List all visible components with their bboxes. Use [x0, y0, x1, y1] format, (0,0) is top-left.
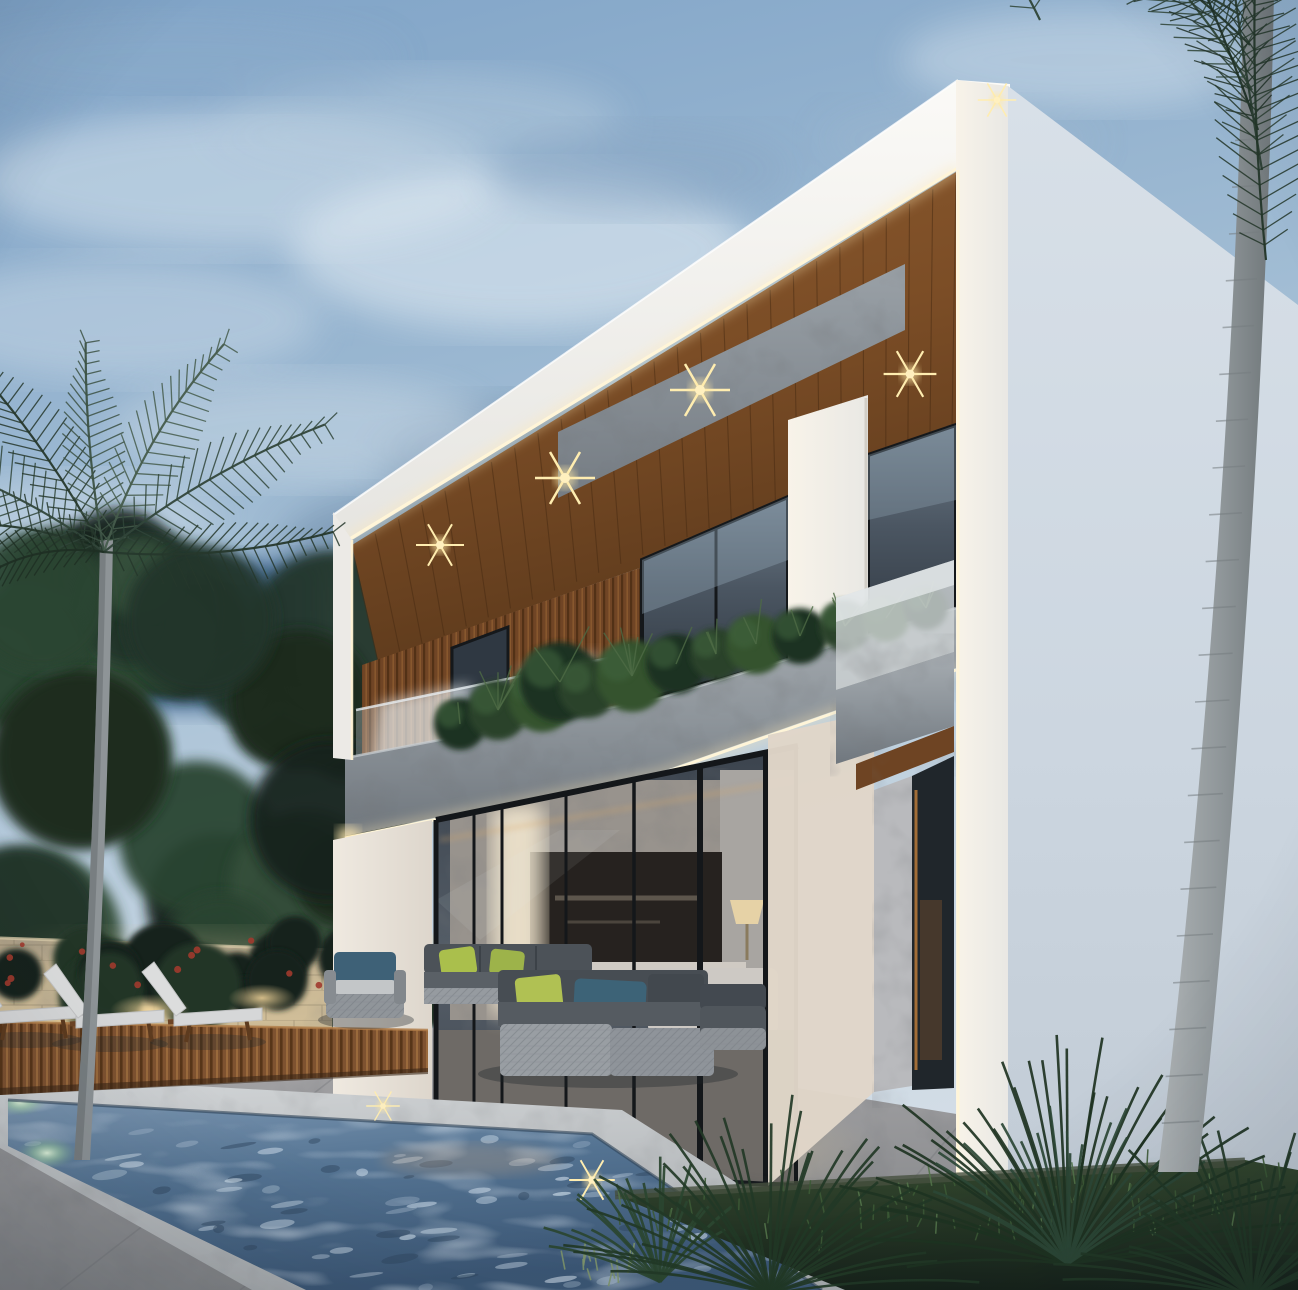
render-canvas	[0, 0, 1298, 1290]
vignette	[0, 0, 1298, 1290]
villa-render-scene	[0, 0, 1298, 1290]
